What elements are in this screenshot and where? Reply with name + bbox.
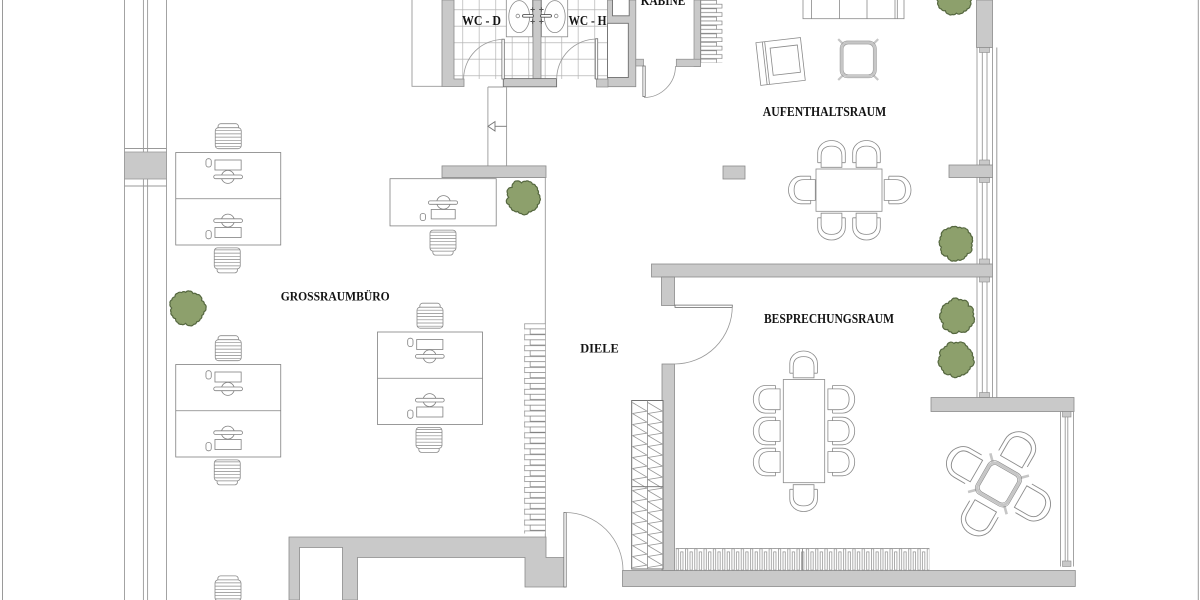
svg-text:WC - H: WC - H: [569, 13, 607, 28]
svg-text:GROSSRAUMBÜRO: GROSSRAUMBÜRO: [281, 288, 390, 303]
svg-text:DIELE: DIELE: [580, 340, 619, 355]
svg-text:BESPRECHUNGSRAUM: BESPRECHUNGSRAUM: [764, 311, 894, 326]
svg-text:KABINE: KABINE: [641, 0, 686, 8]
svg-text:WC - D: WC - D: [462, 13, 501, 28]
svg-text:AUFENTHALTSRAUM: AUFENTHALTSRAUM: [763, 104, 887, 119]
